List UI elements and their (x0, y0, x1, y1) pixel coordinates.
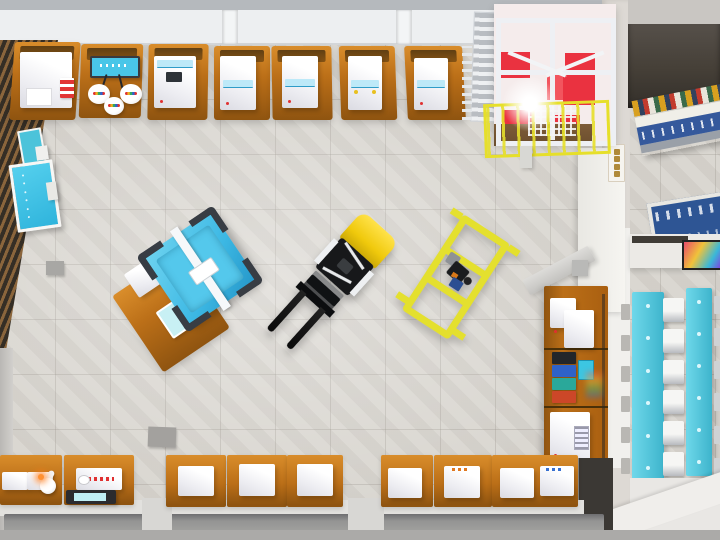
classroom-chair[interactable] (663, 421, 684, 445)
desk-dot (646, 466, 650, 470)
cyan-tray[interactable] (66, 490, 116, 504)
sign-glyph (614, 164, 620, 170)
handle-stub (452, 328, 466, 340)
board-dot (22, 174, 24, 176)
desk-dot (646, 304, 650, 308)
floor-mat (148, 427, 177, 448)
kiosk-machine[interactable] (348, 56, 382, 110)
box-machine[interactable] (239, 464, 275, 496)
classroom-chair[interactable] (663, 360, 684, 384)
desk-dot (697, 460, 701, 464)
floor-mat (46, 261, 64, 275)
board-dot (23, 183, 25, 185)
chair-tab (714, 426, 720, 444)
chair-tab (621, 396, 630, 412)
board-stand (46, 181, 58, 200)
bottom-wall-band (0, 530, 720, 540)
chair-tab-column (621, 304, 630, 474)
sign-glyph (614, 171, 620, 177)
arm-base (40, 478, 56, 494)
case-red (552, 391, 576, 403)
wall-screen[interactable] (90, 56, 140, 78)
chair-tab (621, 427, 630, 443)
tool-icons (655, 200, 720, 222)
red-cartridges (60, 78, 74, 98)
shelf-appliance[interactable] (564, 310, 594, 348)
pot-indicator-dots (93, 92, 105, 95)
shelf-rail (602, 294, 605, 464)
yellow-trolley[interactable] (394, 205, 518, 349)
box-machine[interactable] (540, 466, 574, 496)
board-dot (24, 191, 26, 193)
work-light-glare (502, 76, 558, 132)
chair-tab (714, 361, 720, 379)
desk-dot (646, 434, 650, 438)
desk-dot (697, 300, 701, 304)
stair-railing (462, 46, 472, 120)
chair-column (663, 298, 684, 476)
classroom-chair[interactable] (663, 329, 684, 353)
kiosk-screen-strip (223, 80, 253, 88)
kiosk-machine[interactable] (414, 58, 448, 110)
chair-tab (621, 366, 630, 382)
desk-dot (697, 428, 701, 432)
dispenser-machine[interactable] (20, 52, 72, 108)
tester-machine[interactable] (76, 468, 122, 490)
handle-stub (507, 244, 521, 256)
status-led (420, 102, 423, 105)
classroom-chair[interactable] (663, 298, 684, 322)
shelf-divider (544, 406, 608, 408)
pot-indicator-dots (125, 92, 137, 95)
status-led (160, 100, 163, 103)
desk-dot (646, 401, 650, 405)
box-machine[interactable] (178, 466, 214, 496)
seat (336, 258, 354, 276)
bottom-station (287, 455, 343, 507)
chair-tab (621, 304, 630, 320)
poster-screen[interactable] (682, 240, 720, 270)
box-machine[interactable] (500, 468, 534, 498)
case-stack[interactable] (552, 352, 576, 404)
case-black (552, 352, 576, 364)
kiosk-screen (166, 72, 182, 82)
round-pot[interactable] (120, 84, 142, 104)
desk-dot (697, 332, 701, 336)
status-led (288, 100, 291, 103)
vent-grid (574, 426, 589, 450)
color-marks (546, 468, 564, 471)
console-panel[interactable] (2, 472, 28, 490)
classroom-chair[interactable] (663, 452, 684, 476)
dispenser-tray (26, 88, 52, 106)
kiosk-machine[interactable] (220, 56, 256, 110)
board-stand (35, 145, 49, 161)
desk-dot (697, 364, 701, 368)
walkway-ramp (348, 498, 384, 532)
soffit-column (396, 10, 412, 44)
chair-tab (714, 393, 720, 411)
bottom-station (492, 455, 578, 507)
kiosk-screen-strip (417, 80, 445, 88)
screen-dots (100, 64, 128, 67)
color-reflection (586, 372, 602, 398)
box-machine[interactable] (444, 466, 480, 498)
kiosk-machine[interactable] (154, 56, 196, 108)
board-dots (22, 174, 30, 218)
status-led (554, 330, 557, 333)
workshop-scene: Top-down 3D render of a training worksho… (0, 0, 720, 540)
tray-screen (74, 493, 106, 501)
shelf-divider (544, 348, 608, 350)
color-marks (452, 468, 468, 471)
robot-arm[interactable] (38, 470, 58, 496)
red-indicator-dots (88, 477, 114, 481)
bottom-station (227, 455, 287, 507)
kiosk-machine[interactable] (282, 56, 318, 108)
box-machine[interactable] (388, 468, 422, 498)
chair-tab (621, 458, 630, 474)
desk-dot (646, 369, 650, 373)
box-machine[interactable] (297, 464, 333, 496)
case-teal (552, 378, 576, 390)
bottom-station (434, 455, 492, 507)
desk-dots (697, 300, 701, 464)
corridor-top-wall (628, 0, 720, 26)
chair-tab (621, 335, 630, 351)
yellow-led (372, 90, 376, 94)
case-blue (552, 365, 576, 377)
mezzanine-cage (470, 0, 626, 160)
classroom-desk[interactable] (632, 292, 664, 482)
bottom-station (381, 455, 433, 507)
board-dot (25, 199, 27, 201)
soffit-column (222, 10, 238, 44)
kiosk-screen-strip (351, 80, 379, 88)
chair-tab (714, 328, 720, 346)
board-dot (28, 216, 30, 218)
chair-tab-column (714, 296, 720, 476)
white-knob (78, 475, 90, 485)
desk-dots (646, 304, 650, 470)
forklift[interactable] (259, 208, 401, 357)
classroom-chair[interactable] (663, 390, 684, 414)
fork-tine (286, 307, 326, 350)
board-dot (27, 208, 29, 210)
wall-shelf (544, 286, 608, 470)
yellow-led (354, 90, 358, 94)
pot-indicator-dots (108, 104, 119, 107)
status-led (226, 102, 229, 105)
beam-stub (520, 146, 532, 168)
duct-box (572, 260, 588, 276)
wall-info-band (630, 234, 720, 268)
glow-led (38, 474, 44, 480)
desk-dot (646, 336, 650, 340)
bottom-station (166, 455, 226, 507)
kiosk-screen-strip (285, 79, 315, 87)
band-dark-bar (632, 236, 688, 243)
classroom-desk[interactable] (686, 288, 712, 476)
chair-tab (714, 296, 720, 314)
kiosk-screen-strip (157, 60, 193, 68)
desk-dot (697, 396, 701, 400)
robot-wheel (462, 275, 473, 286)
fork-tine (267, 289, 307, 332)
